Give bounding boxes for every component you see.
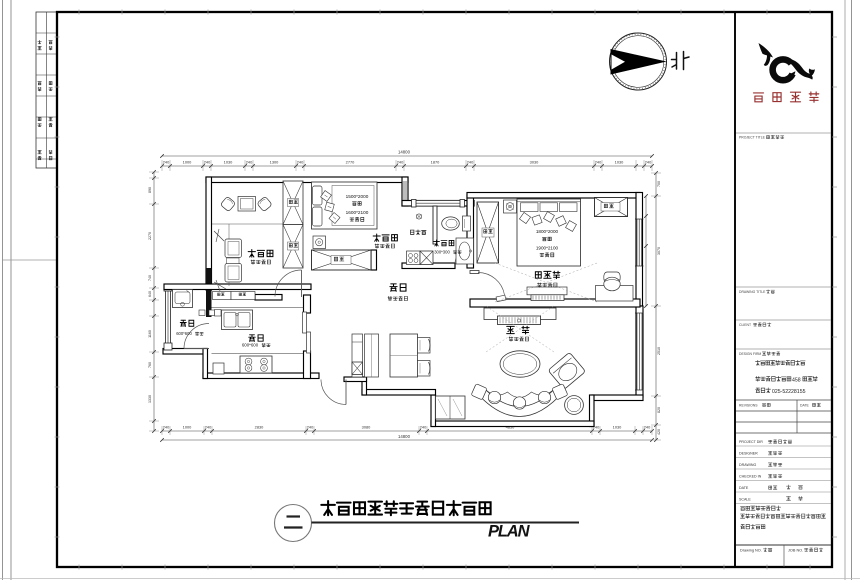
svg-text:1030: 1030 [224, 160, 233, 165]
svg-text:2270: 2270 [148, 232, 152, 240]
svg-text:240: 240 [204, 160, 211, 165]
svg-text:3030: 3030 [530, 160, 539, 165]
svg-text:640: 640 [148, 291, 152, 297]
svg-text:DESIGN FIRM: DESIGN FIRM [739, 352, 761, 356]
svg-text:740: 740 [148, 275, 152, 281]
svg-text:760: 760 [148, 362, 152, 368]
svg-text:DESIGNER: DESIGNER [739, 452, 758, 456]
svg-text:240: 240 [163, 425, 170, 430]
svg-text:240: 240 [645, 160, 652, 165]
svg-text:14800: 14800 [398, 434, 411, 439]
svg-text:1030: 1030 [615, 160, 624, 165]
svg-text:PROJECT TITLE: PROJECT TITLE [739, 136, 766, 140]
svg-text:1870: 1870 [431, 160, 440, 165]
svg-text:240: 240 [644, 425, 651, 430]
svg-text:820: 820 [657, 407, 661, 413]
svg-text:Drawing NO.: Drawing NO. [740, 549, 762, 553]
svg-text:420: 420 [657, 429, 661, 435]
svg-text:240: 240 [467, 160, 474, 165]
svg-text:240: 240 [246, 160, 253, 165]
svg-text:SCALE: SCALE [739, 498, 751, 502]
svg-text:PLAN: PLAN [488, 523, 531, 541]
svg-text:1800*2000: 1800*2000 [536, 229, 559, 234]
svg-text:1000: 1000 [183, 160, 192, 165]
svg-text:600*600: 600*600 [176, 331, 192, 336]
svg-text:1160: 1160 [148, 330, 152, 338]
svg-text:700: 700 [657, 181, 661, 187]
svg-text:DATE: DATE [800, 404, 810, 408]
svg-text:1000: 1000 [183, 425, 192, 430]
svg-text:240: 240 [297, 160, 304, 165]
svg-text:3080: 3080 [362, 425, 371, 430]
svg-text:2510: 2510 [657, 347, 661, 355]
svg-text:REVISIONS: REVISIONS [739, 404, 758, 408]
svg-text:1030: 1030 [613, 425, 622, 430]
svg-text:1900*2100: 1900*2100 [536, 246, 559, 251]
svg-text:1300: 1300 [270, 160, 279, 165]
svg-text:240: 240 [595, 160, 602, 165]
svg-text:1330: 1330 [148, 395, 152, 403]
svg-text:240: 240 [163, 160, 170, 165]
svg-text:CHECKED IN: CHECKED IN [739, 475, 762, 479]
svg-text:240: 240 [205, 425, 212, 430]
svg-text:JOB NO.: JOB NO. [788, 549, 803, 553]
svg-text:14800: 14800 [398, 150, 411, 155]
svg-text:240: 240 [307, 425, 314, 430]
svg-text:2830: 2830 [255, 425, 264, 430]
svg-text:DATE: DATE [739, 486, 749, 490]
svg-text:1600*2100: 1600*2100 [346, 210, 369, 215]
svg-text:DRAWING TITLE: DRAWING TITLE [739, 290, 766, 294]
svg-text:PROJECT DIR: PROJECT DIR [739, 440, 763, 444]
svg-text:025-52228155: 025-52228155 [772, 389, 806, 395]
svg-text:300*300: 300*300 [434, 250, 450, 255]
svg-text:DRAWING: DRAWING [739, 463, 756, 467]
svg-text:890: 890 [148, 187, 152, 193]
svg-text:1500*2000: 1500*2000 [346, 194, 369, 199]
svg-text:600*600: 600*600 [242, 343, 259, 348]
svg-text:CLIENT: CLIENT [739, 323, 751, 327]
svg-text:2770: 2770 [346, 160, 355, 165]
svg-text:240: 240 [397, 160, 404, 165]
svg-text:3070: 3070 [657, 247, 661, 255]
svg-text:240: 240 [420, 425, 427, 430]
svg-text:458: 458 [792, 378, 801, 384]
